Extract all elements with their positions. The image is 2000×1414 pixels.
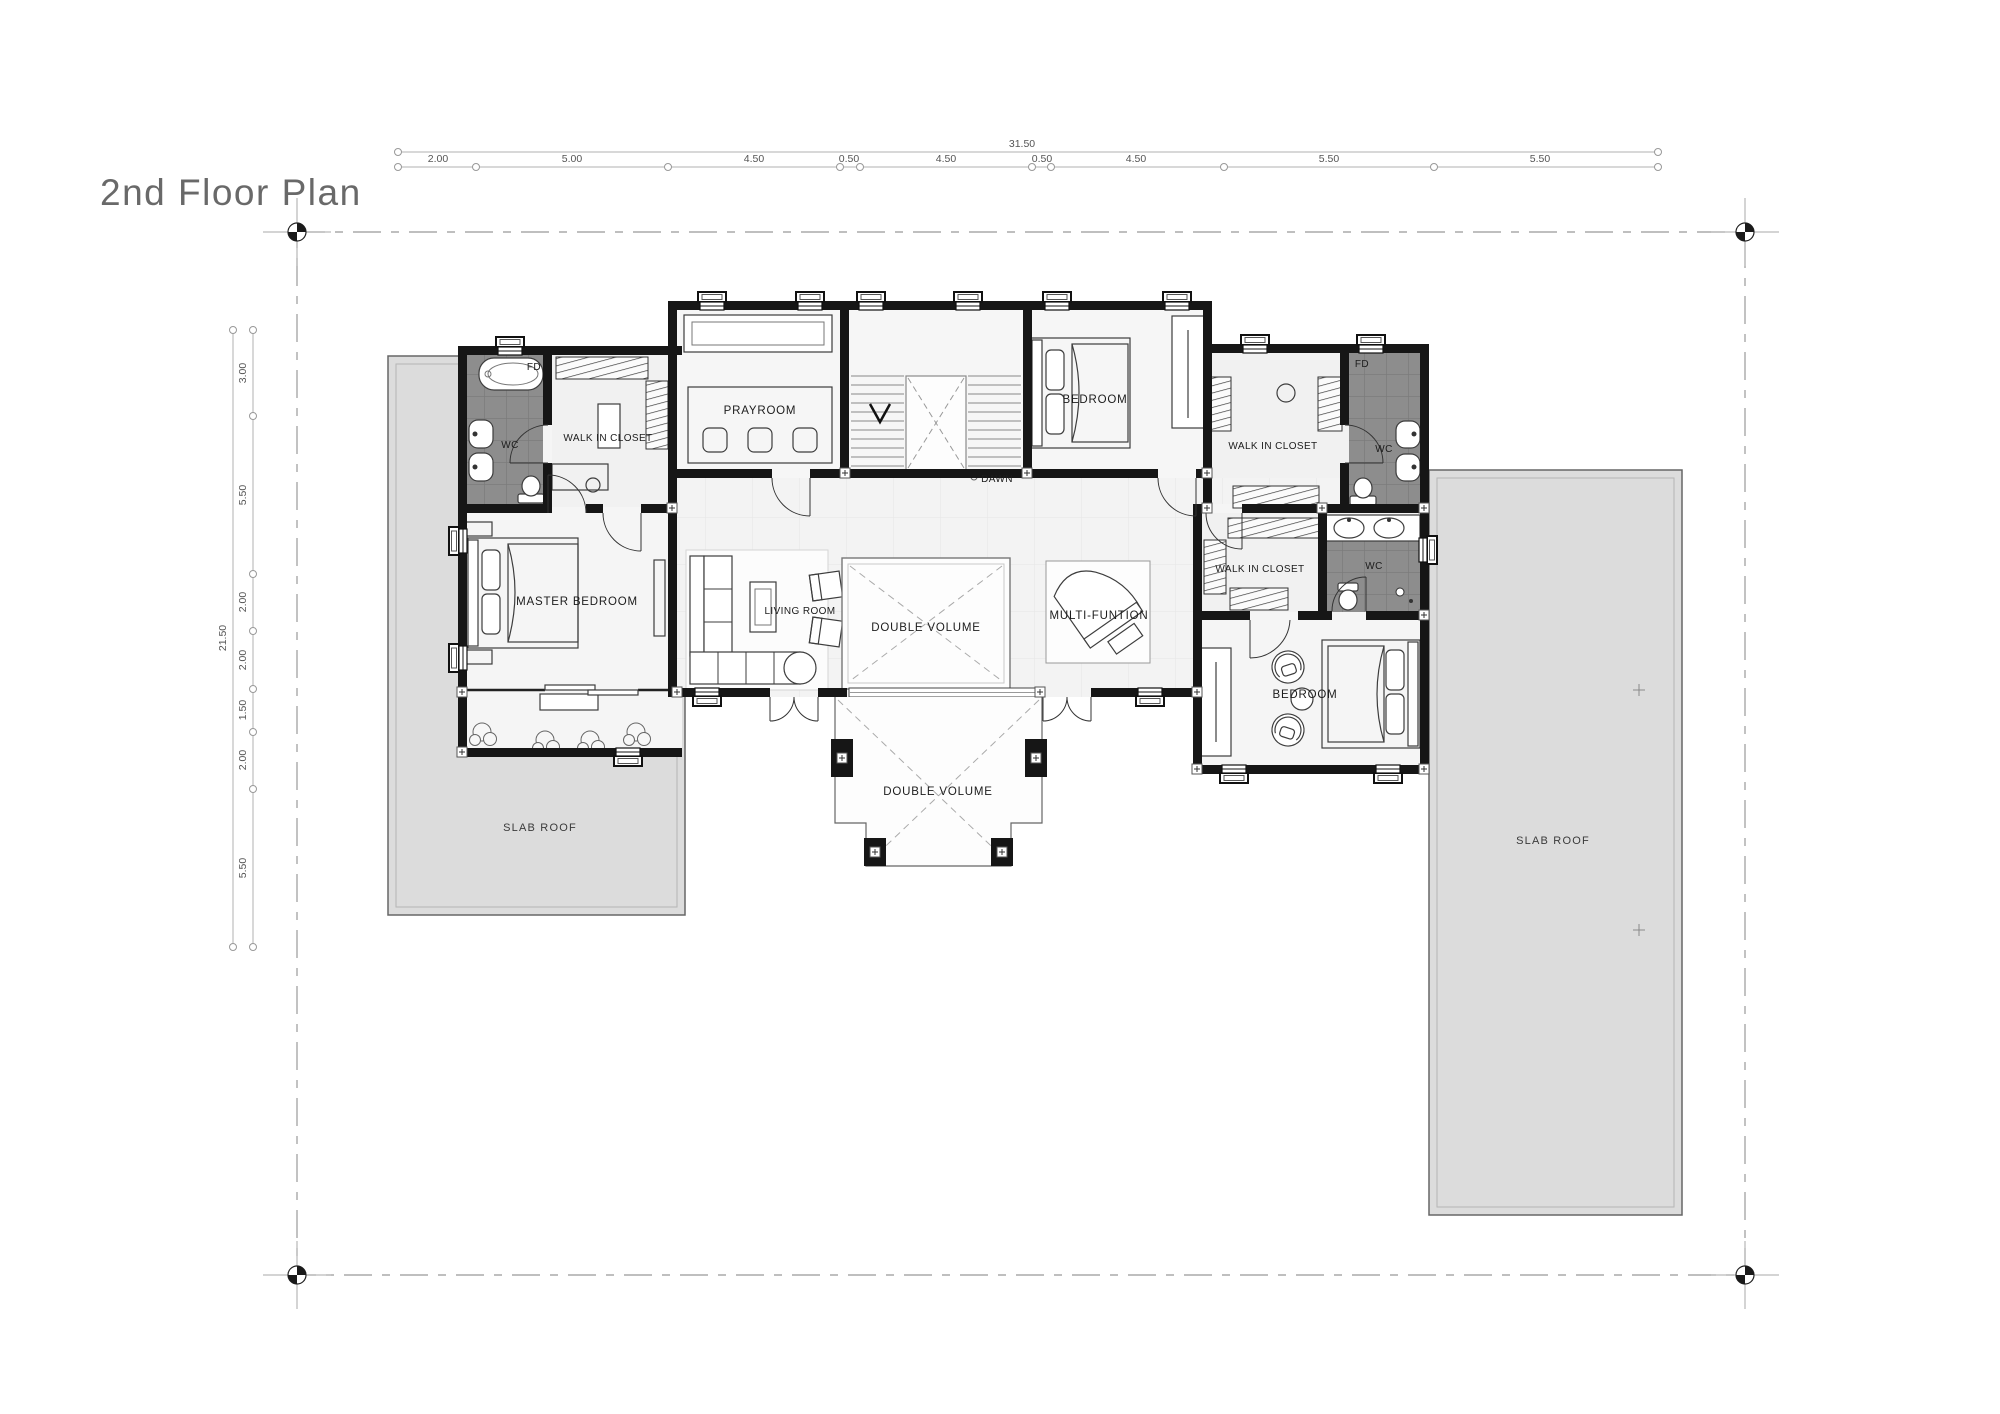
double-volume-lower-porch — [831, 697, 1047, 866]
dim-left-seg: 1.50 — [237, 700, 249, 721]
label-dawn: DAWN — [981, 474, 1013, 485]
sofa-back — [690, 556, 704, 656]
shower-head-icon — [1409, 599, 1413, 603]
window-icon — [449, 644, 467, 672]
wardrobe — [1209, 377, 1231, 431]
pillow — [482, 594, 500, 634]
dim-top-seg: 4.50 — [936, 153, 957, 165]
master-bathroom — [467, 355, 544, 505]
window-icon — [954, 292, 982, 310]
dim-top-total: 31.50 — [1009, 138, 1035, 150]
armchair — [809, 571, 842, 601]
boundary-corner-marker — [263, 198, 331, 266]
bed-headboard — [1032, 340, 1042, 446]
slab-roof-left-label: SLAB ROOF — [503, 822, 577, 834]
window-icon — [449, 527, 467, 555]
label-fd-right: FD — [1355, 359, 1369, 370]
window-icon — [1374, 765, 1402, 783]
window-icon — [614, 748, 642, 766]
toilet — [1338, 583, 1358, 610]
faucet-icon — [473, 465, 478, 470]
bed-headboard — [468, 540, 478, 646]
dim-top-seg: 0.50 — [839, 153, 860, 165]
label-closet-right: WALK IN CLOSET — [1228, 441, 1317, 452]
slab-roof-right-label: SLAB ROOF — [1516, 835, 1590, 847]
dimension-string-left: 21.50 3.00 5.50 2.00 2.00 1.50 2.00 5.50 — [217, 327, 257, 951]
floor-plan-document: 2nd Floor Plan — [0, 0, 2000, 1414]
sliding-door — [545, 685, 595, 690]
faucet-icon — [1387, 518, 1391, 522]
altar-cabinet — [684, 315, 832, 352]
wardrobe — [1230, 588, 1288, 610]
faucet-icon — [473, 432, 478, 437]
wardrobe — [1318, 377, 1342, 431]
label-multi-function: MULTI-FUNTION — [1050, 610, 1149, 622]
window-icon — [1241, 335, 1269, 353]
bathroom-top-right — [1349, 353, 1420, 505]
double-door-terrace-east — [1043, 697, 1091, 721]
label-wc-small: WC — [1365, 561, 1382, 572]
living-room-furniture — [686, 550, 843, 690]
dim-left-seg: 2.00 — [237, 750, 249, 771]
boundary-corner-marker — [263, 1241, 331, 1309]
multi-function-furniture — [1046, 553, 1155, 665]
dim-left-seg: 5.50 — [237, 858, 249, 879]
dim-top-seg: 2.00 — [428, 153, 449, 165]
window-icon — [693, 688, 721, 706]
dimension-string-top: 31.50 2.00 5.00 4.50 0.50 4.50 0.50 4.50… — [395, 138, 1662, 171]
faucet-icon — [1347, 518, 1351, 522]
window-icon — [857, 292, 885, 310]
window-icon — [1163, 292, 1191, 310]
sofa-seats — [704, 556, 732, 656]
dim-left-seg: 2.00 — [237, 592, 249, 613]
column-marker — [870, 847, 880, 857]
dim-top-seg: 4.50 — [744, 153, 765, 165]
label-bedroom-top: BEDROOM — [1062, 394, 1127, 406]
vanity-counter — [1326, 515, 1420, 541]
faucet-icon — [1412, 432, 1417, 437]
window-icon — [698, 292, 726, 310]
dim-left-seg: 5.50 — [237, 485, 249, 506]
wardrobe — [556, 357, 648, 379]
faucet-icon — [1412, 465, 1417, 470]
label-fd-left: FD — [527, 362, 541, 373]
sliding-door — [588, 690, 638, 695]
dim-top-seg: 5.50 — [1530, 153, 1551, 165]
window-icon — [1220, 765, 1248, 783]
dim-left-total: 21.50 — [217, 625, 229, 651]
window-icon — [1419, 536, 1437, 564]
slab-roof-right: SLAB ROOF — [1429, 470, 1682, 1215]
floor-plan-canvas: 31.50 2.00 5.00 4.50 0.50 4.50 0.50 4.50… — [0, 0, 2000, 1414]
column-marker — [997, 847, 1007, 857]
label-wc-left: WC — [501, 440, 518, 451]
bed-headboard — [1408, 642, 1418, 746]
window-icon — [1357, 335, 1385, 353]
boundary-corner-marker — [1711, 1241, 1779, 1309]
dim-top-seg: 0.50 — [1032, 153, 1053, 165]
label-double-volume: DOUBLE VOLUME — [871, 622, 980, 634]
shower-drain — [1396, 588, 1404, 596]
window-icon — [1136, 688, 1164, 706]
pillow — [482, 550, 500, 590]
window-icon — [496, 337, 524, 355]
window-icon — [796, 292, 824, 310]
dim-top-seg: 5.50 — [1319, 153, 1340, 165]
dim-top-seg: 4.50 — [1126, 153, 1147, 165]
bench — [540, 694, 598, 710]
pillow — [1046, 394, 1064, 434]
pillow — [1386, 650, 1404, 690]
dim-left-seg: 2.00 — [237, 650, 249, 671]
label-closet-left: WALK IN CLOSET — [563, 433, 652, 444]
boundary-corner-marker — [1711, 198, 1779, 266]
label-master-bedroom: MASTER BEDROOM — [516, 596, 638, 608]
pillow — [1386, 694, 1404, 734]
column-marker — [837, 753, 847, 763]
column-marker — [1031, 753, 1041, 763]
label-bedroom-right: BEDROOM — [1272, 689, 1337, 701]
sofa-end-cap — [784, 652, 816, 684]
pillow — [1046, 350, 1064, 390]
label-living-room: LIVING ROOM — [764, 606, 835, 617]
label-prayroom: PRAYROOM — [724, 405, 797, 417]
label-double-volume-lower: DOUBLE VOLUME — [883, 786, 992, 798]
armchair — [809, 617, 842, 647]
window-icon — [1043, 292, 1071, 310]
dim-top-seg: 5.00 — [562, 153, 583, 165]
dim-left-seg: 3.00 — [237, 363, 249, 384]
label-wc-right: WC — [1375, 444, 1392, 455]
label-closet-small: WALK IN CLOSET — [1215, 564, 1304, 575]
double-door-terrace-west — [770, 697, 818, 721]
